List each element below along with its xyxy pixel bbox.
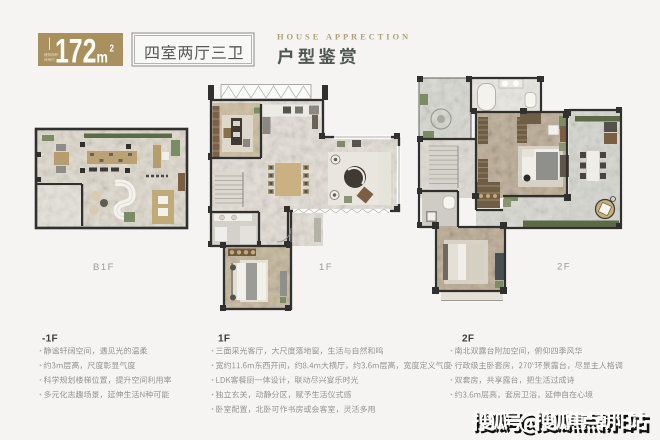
svg-text:-1F: -1F	[42, 334, 58, 345]
svg-text:2F: 2F	[462, 334, 474, 345]
svg-text:B1F: B1F	[93, 262, 115, 273]
svg-text:2F: 2F	[557, 262, 571, 273]
svg-text:172: 172	[55, 32, 96, 70]
svg-text:1F: 1F	[218, 334, 230, 345]
svg-text:HOUSE APPRECTION: HOUSE APPRECTION	[277, 32, 411, 42]
svg-text:1F: 1F	[319, 262, 333, 273]
svg-text:m: m	[97, 49, 108, 67]
svg-text:2: 2	[110, 43, 114, 54]
